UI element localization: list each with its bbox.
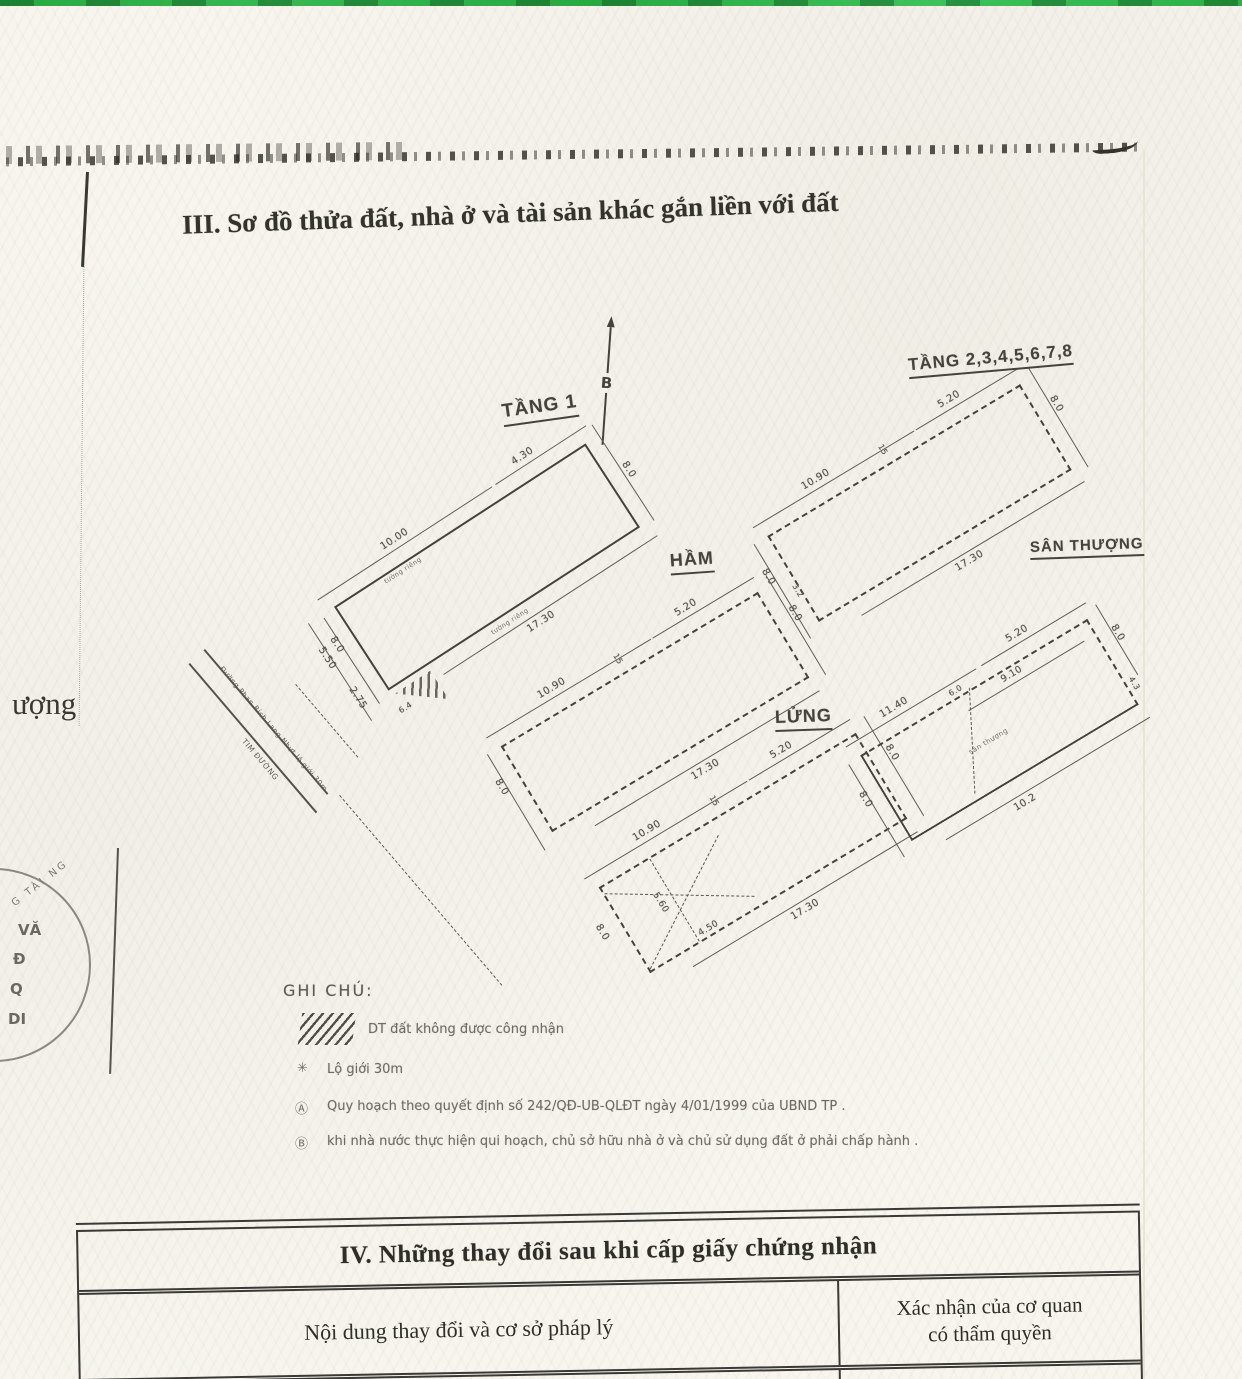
hatch-legend-swatch [298, 1013, 356, 1045]
column-header-content: Nội dung thay đổi và cơ sở pháp lý [79, 1281, 840, 1379]
floorplan-tang2-8: 10.90 15 5.20 8.0 17.30 8.0 3.2 [767, 384, 1071, 622]
legend-bullet-icon: Ⓑ [295, 1133, 308, 1152]
legend-hatch-label: DT đất không được công nhận [368, 1022, 564, 1037]
dim-label: 4.30 [509, 445, 535, 467]
column-header-confirmation-line1: Xác nhận của cơ quan [896, 1291, 1083, 1322]
section-iv-table: IV. Những thay đổi sau khi cấp giấy chứn… [76, 1211, 1143, 1379]
floorplan-san-thuong: 11.40 6.0 9.10 5.20 8.0 4.3 10.2 8.0 sân… [860, 619, 1139, 841]
tang1-outline [334, 443, 640, 690]
right-page-edge [1143, 150, 1145, 1379]
section-iii-title: III. Sơ đồ thửa đất, nhà ở và tài sản kh… [182, 182, 973, 241]
north-arrow: B [597, 316, 617, 445]
plan-title-lung: LỬNG [775, 705, 833, 732]
legend-item-text: Lộ giới 30m [327, 1062, 403, 1077]
scanned-certificate-page: III. Sơ đồ thửa đất, nhà ở và tài sản kh… [0, 0, 1242, 1379]
dim-label: 8.0 [1047, 394, 1065, 415]
stamp-text-line: Đ [13, 950, 26, 968]
plan-title-san-thuong: SÂN THƯỢNG [1030, 535, 1144, 560]
left-margin-text-fragment: ượng [12, 686, 76, 722]
column-header-confirmation: Xác nhận của cơ quan có thẩm quyền [839, 1276, 1141, 1365]
dim-label: 17.30 [953, 548, 985, 573]
dim-label: 5.20 [936, 389, 962, 411]
green-scan-bar-dashes [0, 0, 1242, 6]
legend-bullet-icon: Ⓐ [295, 1098, 308, 1117]
page-fold-line [81, 172, 88, 267]
north-arrow-line [601, 393, 607, 445]
plan-title-tang2-8: TẦNG 2,3,4,5,6,7,8 [907, 341, 1074, 379]
legend-bullet-icon: ✳ [297, 1061, 308, 1076]
dim-label: 6.4 [397, 700, 414, 715]
table-column-divider [839, 1370, 842, 1379]
floorplan-tang1: 10.00 4.30 tường riêng 8.0 17.30 tường r… [334, 443, 640, 690]
table-header-row: Nội dung thay đổi và cơ sở pháp lý Xác n… [79, 1276, 1140, 1379]
legend-item-text: khi nhà nước thực hiện qui hoạch, chủ sở… [327, 1134, 918, 1149]
dim-label: 17.30 [689, 757, 721, 782]
page-border-segment [109, 848, 119, 1074]
north-arrow-head-icon [606, 316, 615, 328]
north-label: B [600, 373, 613, 394]
dim-label: 17.30 [789, 897, 821, 922]
dim-label: 8.0 [593, 922, 611, 943]
dim-label: 5.20 [1004, 623, 1030, 645]
plan-title-tang1: TẦNG 1 [501, 391, 580, 427]
page-fold-dotted-line [79, 266, 85, 726]
section-iv-title: IV. Những thay đổi sau khi cấp giấy chứn… [340, 1232, 878, 1270]
tang2-8-outline [767, 384, 1071, 622]
stamp-text-line: Q [10, 980, 23, 998]
dim-label: 10.2 [1012, 792, 1038, 814]
dim-label: 8.0 [328, 635, 347, 656]
dim-label: 8.0 [1108, 623, 1126, 644]
dim-label: 8.0 [759, 567, 777, 588]
dim-label: 8.0 [492, 777, 510, 798]
dim-label: 5.20 [673, 597, 699, 619]
column-header-confirmation-line2: có thẩm quyền [928, 1319, 1052, 1349]
setback-dashed-line [339, 795, 502, 986]
stamp-text-line: DI [8, 1010, 26, 1028]
stamp-text-line: VĂ [18, 921, 41, 939]
dim-label: 5.20 [768, 739, 794, 761]
green-scan-bar [0, 0, 1242, 6]
dim-label: 8.0 [619, 460, 638, 481]
legend-item-text: Quy hoạch theo quyết định số 242/QĐ-UB-Q… [327, 1099, 845, 1114]
road-centerline-label: TIM ĐƯỜNG [240, 737, 280, 782]
plan-title-ham: HẦM [669, 547, 715, 575]
dim-label: 2.75 [346, 685, 368, 711]
legend-title: GHI CHÚ: [283, 981, 374, 1000]
north-arrow-line [606, 327, 611, 373]
